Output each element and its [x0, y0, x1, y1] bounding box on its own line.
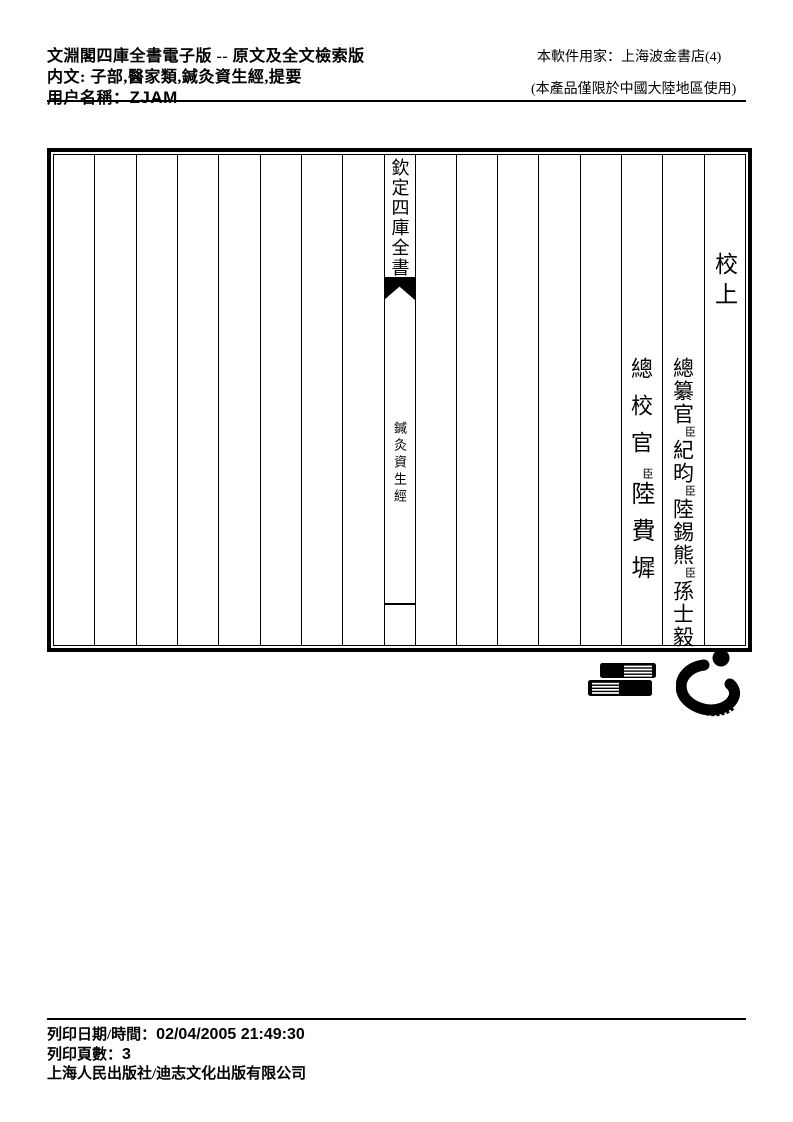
compiler-name-2: 陸錫熊	[671, 498, 695, 567]
print-preview-page: 文淵閣四庫全書電子版 -- 原文及全文檢索版 内文: 子部,醫家類,鍼灸資生經,…	[0, 0, 793, 1122]
minister-honorific: 臣	[682, 426, 698, 439]
proof-label-column: 校上	[703, 252, 744, 312]
licensee-line: 本軟件用家：上海波金書店(4)	[537, 46, 721, 66]
banxin-content: 欽定四庫全書 鍼灸資生經	[384, 155, 415, 645]
minister-honorific: 臣	[639, 468, 655, 481]
blank-column	[136, 155, 177, 645]
blank-column	[497, 155, 538, 645]
minister-honorific: 臣	[682, 485, 698, 498]
print-pages-label: 列印頁數：	[47, 1047, 122, 1063]
print-datetime-line: 列印日期/時間：02/04/2005 21:49:30	[47, 1023, 305, 1044]
chief-proofreader-column: 總校官臣陸費墀	[620, 357, 661, 592]
blank-column	[301, 155, 342, 645]
banxin-subtitle-wrap: 鍼灸資生經	[384, 421, 415, 506]
blank-column	[54, 155, 94, 645]
user-name-label: 用户名稱：	[47, 90, 130, 107]
proofreader-name: 陸費墀	[627, 481, 653, 592]
chief-compiler-column: 總纂官臣紀昀臣陸錫熊臣孫士毅	[662, 357, 703, 649]
blank-column	[415, 155, 456, 645]
banxin-divider	[384, 603, 415, 605]
blank-column	[218, 155, 259, 645]
user-name-line: 用户名稱：ZJAM	[47, 84, 178, 108]
compiler-name-1: 紀昀	[671, 439, 695, 485]
stacked-books-logo-icon	[588, 661, 658, 701]
print-datetime-label: 列印日期/時間：	[47, 1027, 156, 1043]
banxin-title-wrap: 欽定四庫全書	[384, 158, 415, 278]
siku-quanshu-title: 欽定四庫全書	[387, 158, 413, 278]
print-pages-line: 列印頁數：3	[47, 1043, 131, 1064]
brush-swirl-logo-icon	[676, 648, 744, 720]
proof-label: 校上	[707, 252, 741, 312]
print-pages-value: 3	[122, 1046, 131, 1063]
chief-proofreader-text: 總校官臣陸費墀	[623, 357, 658, 592]
blank-column	[456, 155, 497, 645]
blank-column	[580, 155, 621, 645]
blank-column	[177, 155, 218, 645]
book-title: 鍼灸資生經	[390, 421, 409, 506]
chief-proofreader-title: 總校官	[628, 357, 653, 468]
user-name-value: ZJAM	[130, 88, 178, 107]
header-divider	[47, 100, 746, 102]
blank-column	[538, 155, 579, 645]
blank-column	[94, 155, 135, 645]
footer-divider	[47, 1018, 746, 1020]
chief-compiler-title: 總纂官	[671, 357, 695, 426]
book-page-inner-frame: 欽定四庫全書 鍼灸資生經 校上 總纂官臣紀昀臣陸錫熊臣孫士毅 總校官臣陸費墀	[53, 154, 746, 646]
region-restriction-line: (本產品僅限於中國大陸地區使用)	[531, 78, 736, 98]
chief-compiler-text: 總纂官臣紀昀臣陸錫熊臣孫士毅	[668, 357, 698, 649]
publisher-line: 上海人民出版社/迪志文化出版有限公司	[47, 1062, 306, 1083]
blank-column	[260, 155, 301, 645]
print-datetime-value: 02/04/2005 21:49:30	[156, 1026, 305, 1043]
fishtail-marker-icon	[384, 277, 415, 300]
minister-honorific: 臣	[682, 567, 698, 580]
blank-column	[342, 155, 383, 645]
compiler-name-3: 孫士毅	[671, 580, 695, 649]
blank-column	[704, 155, 745, 645]
book-page-frame: 欽定四庫全書 鍼灸資生經 校上 總纂官臣紀昀臣陸錫熊臣孫士毅 總校官臣陸費墀	[47, 148, 752, 652]
